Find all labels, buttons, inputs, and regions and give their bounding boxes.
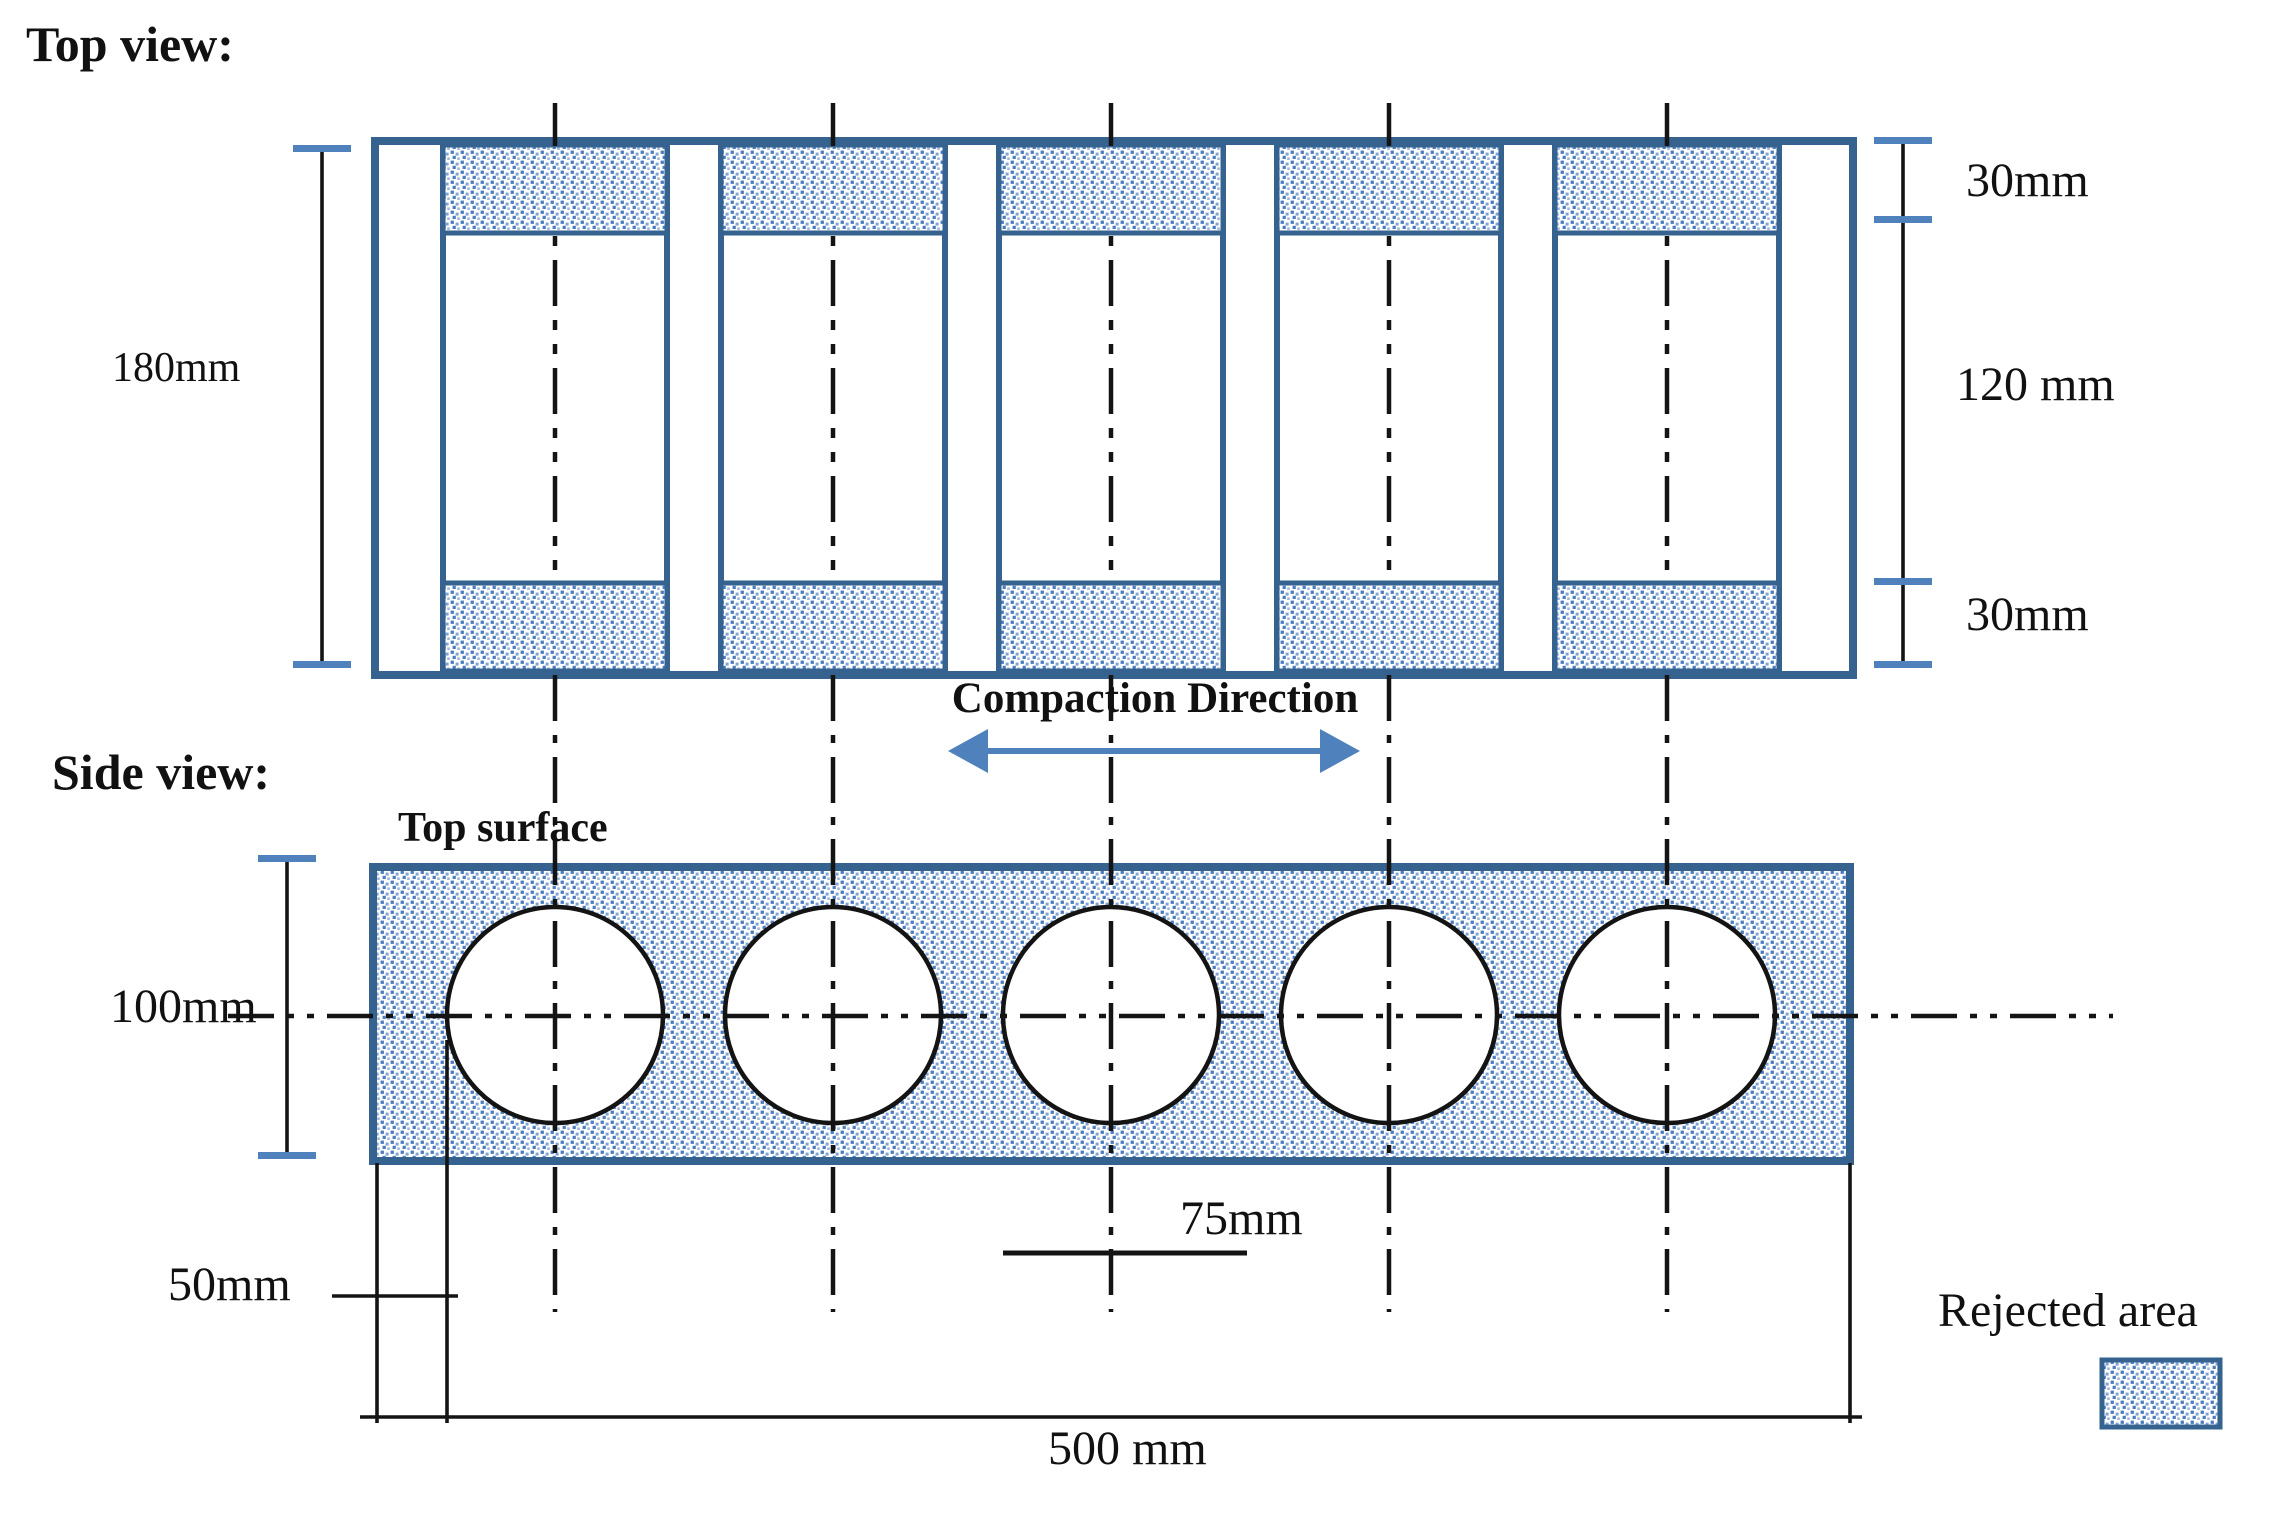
rejected-band bbox=[443, 145, 667, 233]
rejected-band bbox=[1277, 583, 1501, 671]
engineering-diagram: Top view: 180mm 30mm 120 mm 30mm Compact… bbox=[0, 0, 2295, 1525]
rejected-band bbox=[999, 145, 1223, 233]
rejected-area-label: Rejected area bbox=[1938, 1286, 2198, 1336]
dim-label-100mm: 100mm bbox=[110, 982, 257, 1032]
dim-label-180mm: 180mm bbox=[112, 346, 240, 390]
rejected-area-swatch bbox=[2102, 1360, 2220, 1427]
rejected-band bbox=[443, 583, 667, 671]
top-view-title: Top view: bbox=[26, 18, 234, 71]
dim-label-500mm: 500 mm bbox=[1048, 1424, 1207, 1474]
rejected-band bbox=[721, 583, 945, 671]
rejected-band bbox=[1555, 145, 1779, 233]
dim-label-75mm: 75mm bbox=[1180, 1194, 1303, 1244]
rejected-band bbox=[1277, 145, 1501, 233]
rejected-band bbox=[1555, 583, 1779, 671]
compaction-arrow-icon bbox=[948, 729, 1360, 773]
dim-label-50mm: 50mm bbox=[168, 1260, 291, 1310]
rejected-band bbox=[721, 145, 945, 233]
top-surface-label: Top surface bbox=[398, 806, 608, 850]
compaction-direction-label: Compaction Direction bbox=[920, 676, 1390, 721]
side-view-title: Side view: bbox=[52, 746, 270, 799]
rejected-band bbox=[999, 583, 1223, 671]
dim-label-30mm-bottom: 30mm bbox=[1966, 590, 2089, 640]
dim-label-30mm-top: 30mm bbox=[1966, 156, 2089, 206]
dim-label-120mm: 120 mm bbox=[1956, 360, 2115, 410]
